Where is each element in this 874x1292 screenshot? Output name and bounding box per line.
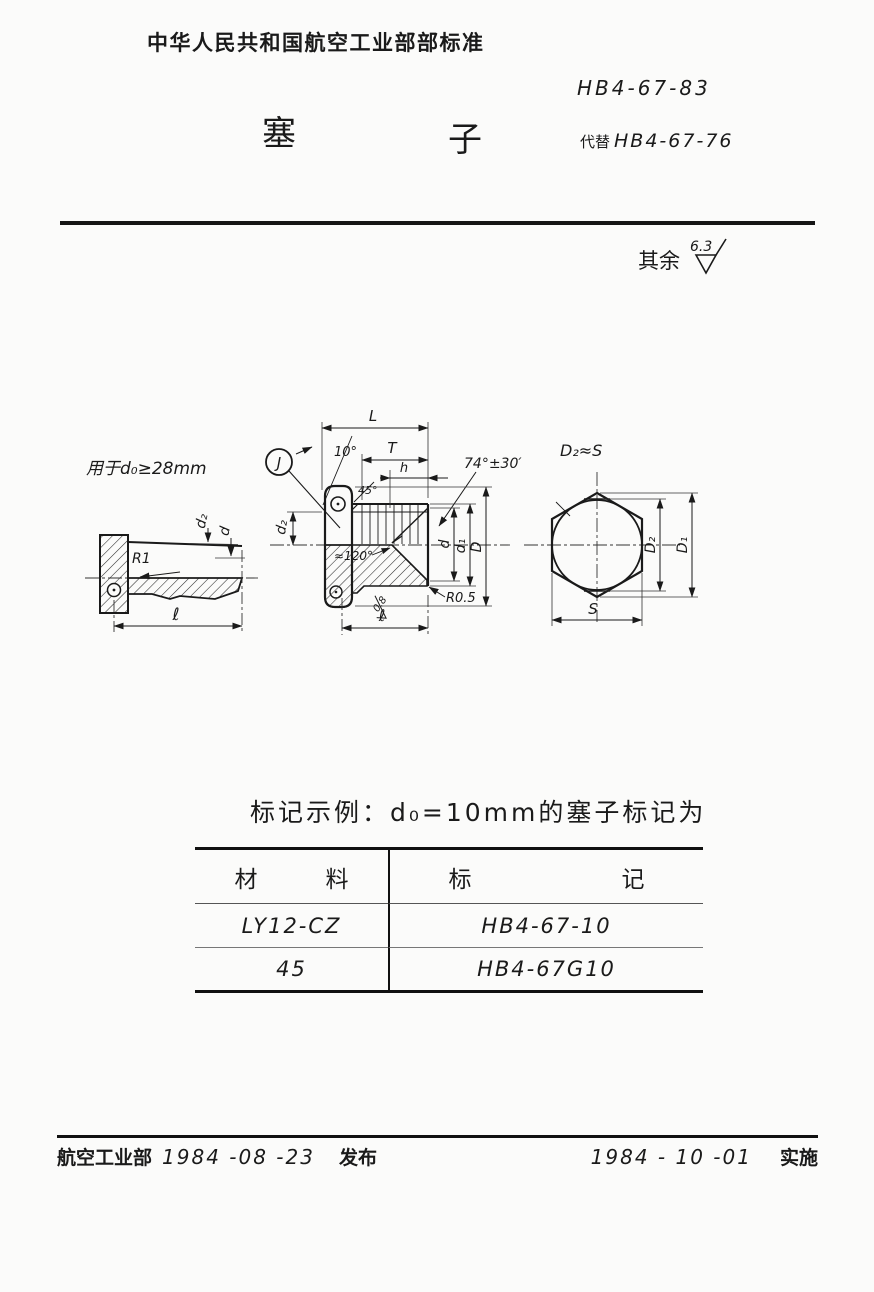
footer-issue-date: 1984 -08 -23 xyxy=(162,1145,315,1169)
finish-value: 6.3 xyxy=(690,239,712,255)
footer-issuer: 航空工业部 xyxy=(57,1143,152,1170)
middle-dim-h: h xyxy=(400,461,408,476)
table-header-material: 材料 xyxy=(195,850,388,904)
middle-dim-d2: d₂ xyxy=(273,518,291,535)
footer-impl-group: 1984 - 10 -01 实施 xyxy=(591,1143,818,1170)
footer-issue-label: 发布 xyxy=(339,1143,377,1170)
surface-finish-note: 其余 6.3 xyxy=(638,237,734,279)
left-view: 用于d₀≥28mm R1 d₂ d ℓ xyxy=(85,459,258,632)
replaces-number: HB4-67-76 xyxy=(614,130,733,152)
right-dim-S: S xyxy=(588,600,598,618)
middle-dim-d1: d₁ xyxy=(453,539,469,554)
header-rule xyxy=(60,221,815,225)
middle-dim-T: T xyxy=(387,439,398,457)
table-header-marking-label: 标记 xyxy=(449,860,795,894)
replaces-label: 代替 xyxy=(580,131,610,152)
middle-detail-J: J xyxy=(274,454,281,472)
middle-dim-D: D xyxy=(469,541,485,552)
left-dim-d: d xyxy=(216,525,234,537)
right-view-note: D₂≈S xyxy=(560,441,602,460)
table-cell-marking-1: HB4-67-10 xyxy=(388,904,703,948)
marking-example: 标记示例：d₀=10mm的塞子标记为 xyxy=(250,793,706,829)
middle-dim-length: ℓ xyxy=(378,606,386,625)
roughness-symbol-icon: 6.3 xyxy=(686,237,734,279)
middle-dim-L: L xyxy=(369,407,377,425)
doc-title-char-left: 塞 xyxy=(262,106,296,155)
footer-impl-label: 实施 xyxy=(780,1143,818,1170)
spec-table: 材料 标记 LY12-CZ HB4-67-10 45 HB4-67G10 xyxy=(195,847,703,993)
standard-number: HB4-67-83 xyxy=(577,76,711,100)
left-dim-d2: d₂ xyxy=(193,512,212,530)
middle-dim-seat-angle: 74°±30′ xyxy=(464,456,522,472)
left-view-note: 用于d₀≥28mm xyxy=(86,459,207,479)
table-cell-marking-2: HB4-67G10 xyxy=(388,948,703,990)
left-dim-r1: R1 xyxy=(132,551,151,567)
table-cell-material-1: LY12-CZ xyxy=(195,904,388,948)
middle-dim-tip-angle: ≈120° xyxy=(334,549,373,563)
replaces-note: 代替 HB4-67-76 xyxy=(580,130,734,152)
left-dim-length: ℓ xyxy=(171,605,179,625)
middle-dim-angle10: 10° xyxy=(334,445,357,460)
right-dim-D1: D₁ xyxy=(675,537,691,553)
footer-rule xyxy=(57,1135,818,1138)
footer-impl-date: 1984 - 10 -01 xyxy=(591,1145,752,1169)
table-header-marking: 标记 xyxy=(388,850,703,904)
footer-issue-group: 航空工业部 1984 -08 -23 发布 xyxy=(57,1143,377,1170)
table-cell-material-2: 45 xyxy=(195,948,388,990)
page-root: { "page": { "header": { "org_standard": … xyxy=(0,0,874,1292)
finish-prefix-label: 其余 xyxy=(638,237,680,275)
middle-dim-d: d xyxy=(437,539,453,548)
doc-title-char-right: 子 xyxy=(448,112,482,161)
middle-dim-chamfer45: 45° xyxy=(358,484,378,497)
org-standard-title: 中华人民共和国航空工业部部标准 xyxy=(147,27,485,57)
right-dim-D2: D₂ xyxy=(643,536,659,553)
right-view: D₂≈S D₂ D₁ S xyxy=(524,441,698,626)
technical-drawing: 用于d₀≥28mm R1 d₂ d ℓ J xyxy=(40,400,800,660)
footer: 航空工业部 1984 -08 -23 发布 1984 - 10 -01 实施 xyxy=(57,1143,818,1170)
middle-dim-r05: R0.5 xyxy=(446,591,476,606)
middle-view: J L 10° T xyxy=(266,407,522,635)
